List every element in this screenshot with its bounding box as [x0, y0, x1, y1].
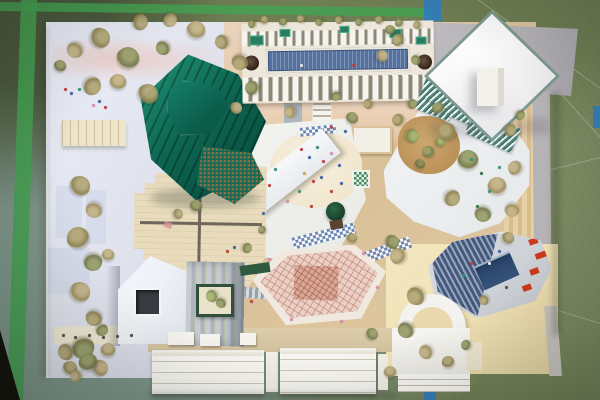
diamond-roof-cube: [477, 68, 504, 106]
model-baseboards: [0, 0, 600, 400]
board-edge-shadow: [150, 393, 396, 398]
site-plot: [86, 190, 107, 244]
crenellated-fin-row: [242, 74, 434, 101]
photo-architectural-model: [0, 0, 600, 400]
board-edge-shadow: [42, 26, 47, 378]
grandstand-steps: [152, 350, 264, 394]
arch-side-block: [466, 342, 482, 370]
site-plot: [48, 248, 90, 294]
rooftop-pool-building: [241, 20, 434, 103]
red-accent: [535, 250, 547, 259]
roof-planter: [339, 26, 349, 33]
board-edge-shadow: [552, 92, 560, 336]
white-wall-piece: [240, 333, 256, 345]
small-gray-block: [284, 102, 302, 124]
house-window: [134, 288, 161, 316]
arch-steps: [398, 374, 470, 392]
rooftop-pool: [266, 47, 410, 74]
red-accent: [529, 267, 540, 276]
grandstand-end-block: [378, 354, 388, 390]
crenellated-fin-row: [241, 28, 433, 46]
hexagon-core-block: [293, 265, 338, 301]
roof-planter: [279, 29, 290, 37]
site-plot: [56, 186, 83, 238]
arch-base-slab: [392, 328, 470, 376]
grandstand-steps: [280, 348, 376, 394]
roof-planter: [389, 29, 401, 38]
planted-courtyard-box: [196, 284, 234, 317]
white-wall-piece: [168, 332, 194, 345]
grandstand-gap-block: [266, 352, 278, 392]
house-shadow: [106, 266, 120, 346]
roof-planter: [250, 35, 264, 45]
red-accent: [522, 283, 533, 292]
spiral-stair-drum: [417, 54, 432, 69]
spiral-stair-drum: [244, 55, 259, 70]
left-terrace-bar: [62, 120, 126, 146]
roof-planter: [416, 36, 427, 44]
green-grid-kiosk: [352, 170, 370, 188]
white-wall-piece: [200, 334, 220, 346]
